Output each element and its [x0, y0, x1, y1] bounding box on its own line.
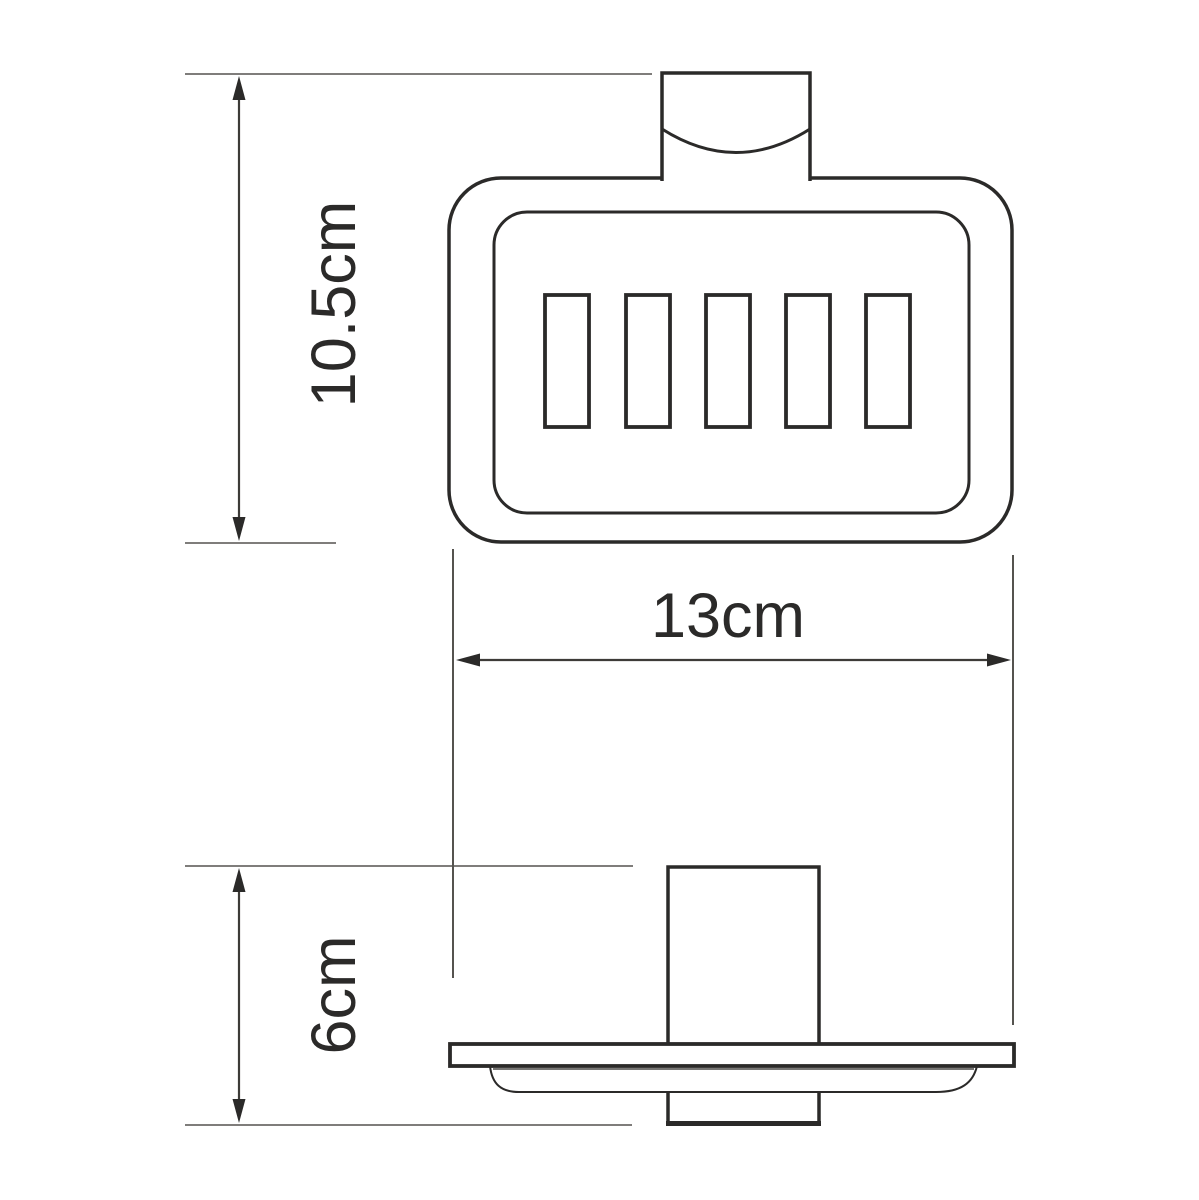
height-dimension: 10.5cm [233, 76, 370, 541]
arrowhead-up-icon [233, 76, 246, 100]
arrowhead-down-icon [233, 517, 246, 541]
drain-slot [786, 295, 830, 427]
technical-drawing-canvas: 10.5cm 13cm [0, 0, 1199, 1200]
drain-slot [706, 295, 750, 427]
arrowhead-right-icon [987, 654, 1011, 667]
side-view [450, 867, 1014, 1124]
drain-slot [545, 295, 589, 427]
post-lower [666, 1092, 821, 1124]
arrowhead-left-icon [456, 654, 480, 667]
arrowhead-up-icon [233, 868, 246, 892]
front-view [449, 73, 1012, 542]
drain-slot [866, 295, 910, 427]
soap-basket-dimension-diagram: 10.5cm 13cm [0, 0, 1199, 1200]
dish-profile [490, 1066, 977, 1092]
shelf-plate [450, 1044, 1014, 1066]
width-dimension: 13cm [456, 581, 1011, 667]
drain-slot [626, 295, 670, 427]
width-dimension-label: 13cm [651, 581, 805, 651]
height-dimension-label: 10.5cm [299, 201, 369, 408]
arrowhead-down-icon [233, 1099, 246, 1123]
depth-dimension-label: 6cm [299, 935, 369, 1054]
wall-mount-post [668, 867, 819, 1045]
depth-dimension: 6cm [233, 868, 370, 1123]
mounting-bracket [662, 73, 810, 181]
